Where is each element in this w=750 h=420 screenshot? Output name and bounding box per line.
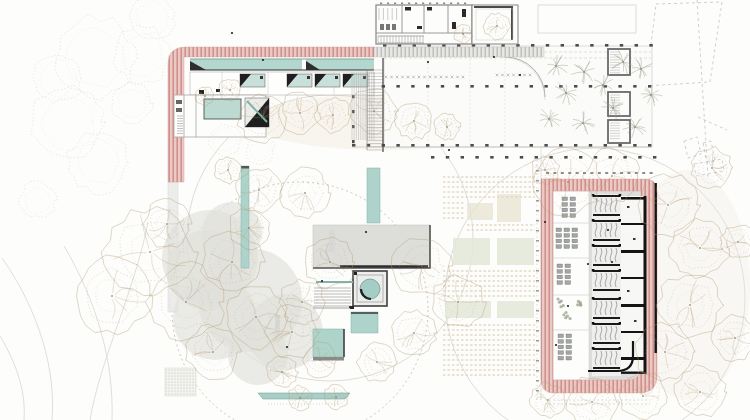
- neighbor-buildings-dashed: [646, 0, 727, 177]
- north-building: [376, 3, 636, 45]
- site-plan-canvas: [0, 0, 750, 420]
- terrain-contours: [0, 222, 148, 420]
- east-building: [536, 170, 657, 404]
- architectural-plan-drawing: [0, 0, 750, 420]
